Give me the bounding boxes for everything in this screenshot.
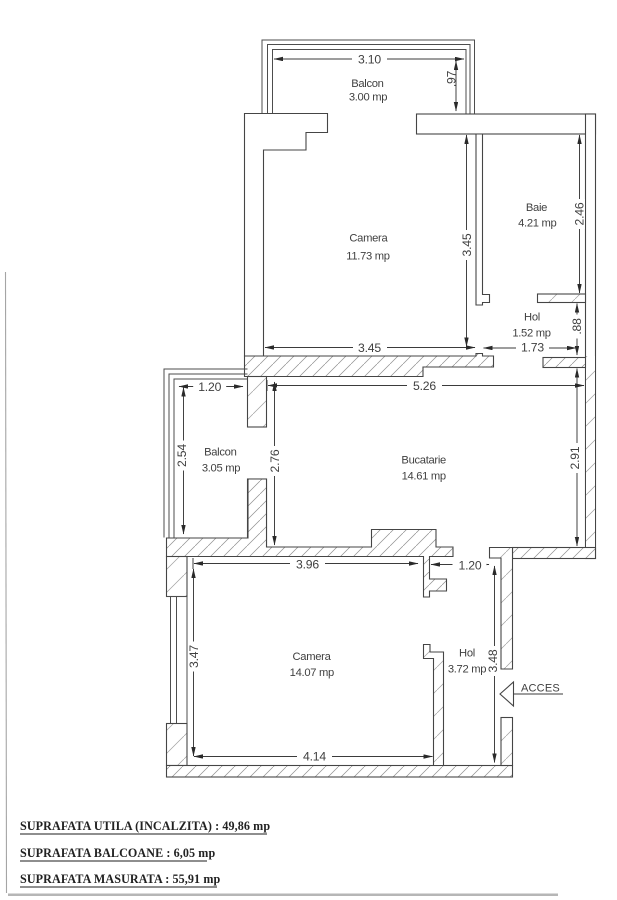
svg-text:Balcon: Balcon	[204, 447, 236, 459]
svg-text:11.73 mp: 11.73 mp	[346, 251, 389, 263]
svg-text:SUPRAFATA MASURATA : 55,91 mp: SUPRAFATA MASURATA : 55,91 mp	[20, 872, 220, 886]
svg-text:3.48: 3.48	[486, 649, 500, 672]
svg-text:14.61 mp: 14.61 mp	[402, 471, 446, 483]
svg-text:14.07 mp: 14.07 mp	[290, 667, 334, 679]
svg-text:3.72 mp: 3.72 mp	[448, 664, 486, 676]
svg-text:4.14: 4.14	[303, 750, 326, 764]
svg-text:.97: .97	[444, 70, 458, 87]
svg-text:ACCES: ACCES	[521, 683, 560, 695]
svg-text:3.45: 3.45	[358, 341, 381, 355]
svg-text:Baie: Baie	[526, 202, 547, 214]
svg-text:2.76: 2.76	[268, 449, 282, 472]
svg-text:Camera: Camera	[293, 651, 332, 663]
svg-text:1.20: 1.20	[198, 380, 221, 394]
svg-text:Camera: Camera	[349, 233, 388, 245]
svg-text:1.52 mp: 1.52 mp	[512, 328, 550, 340]
svg-text:3.47: 3.47	[187, 645, 201, 668]
svg-text:SUPRAFATA BALCOANE : 6,05 mp: SUPRAFATA BALCOANE : 6,05 mp	[20, 846, 215, 860]
svg-text:Balcon: Balcon	[351, 78, 383, 90]
svg-text:3.45: 3.45	[460, 233, 474, 256]
svg-text:3.00 mp: 3.00 mp	[349, 92, 387, 104]
svg-text:2.46: 2.46	[573, 202, 587, 225]
svg-text:2.91: 2.91	[568, 446, 582, 469]
svg-text:Hol: Hol	[524, 312, 540, 324]
svg-text:SUPRAFATA UTILA (INCALZITA) :: SUPRAFATA UTILA (INCALZITA) : 49,86 mp	[20, 819, 270, 833]
svg-text:1.73: 1.73	[521, 341, 544, 355]
svg-text:5.26: 5.26	[413, 379, 436, 393]
svg-text:4.21 mp: 4.21 mp	[518, 218, 556, 230]
svg-text:3.05 mp: 3.05 mp	[202, 463, 240, 475]
svg-text:1.20: 1.20	[459, 559, 482, 573]
svg-text:2.54: 2.54	[175, 444, 189, 467]
svg-text:3.10: 3.10	[358, 53, 381, 67]
svg-text:Hol: Hol	[459, 648, 475, 660]
svg-text:Bucatarie: Bucatarie	[401, 455, 446, 467]
svg-text:.88: .88	[570, 318, 584, 335]
svg-text:3.96: 3.96	[296, 558, 319, 572]
